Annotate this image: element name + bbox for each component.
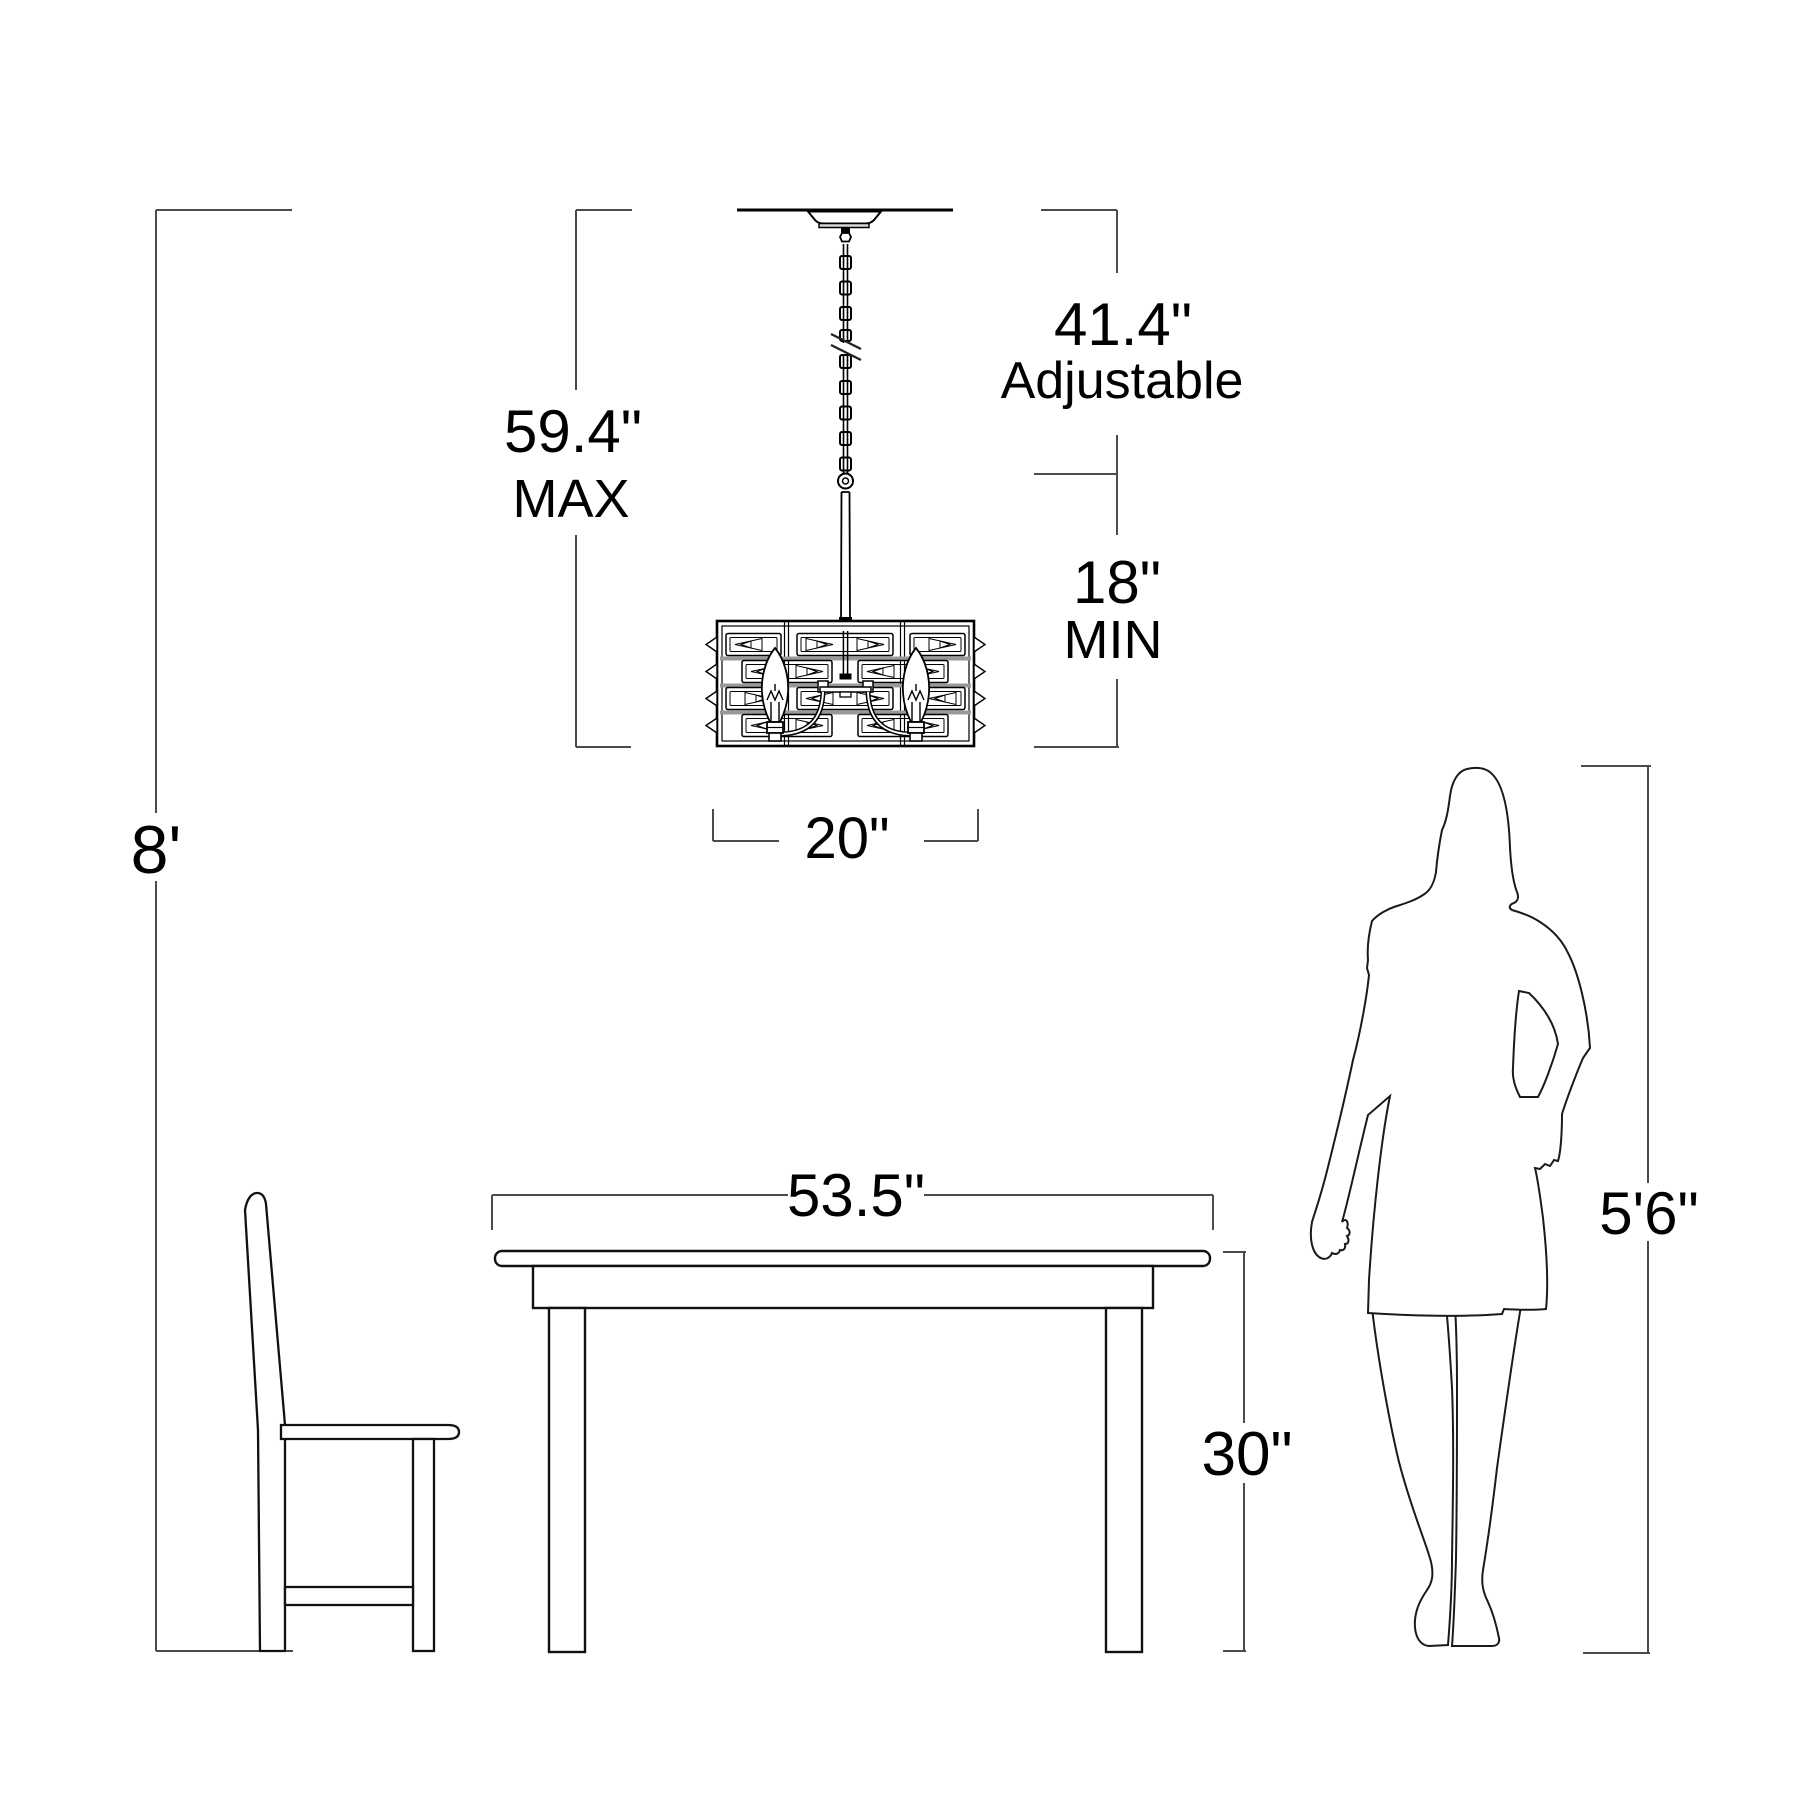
- svg-text:18": 18": [1073, 549, 1161, 616]
- svg-text:5'6": 5'6": [1599, 1180, 1699, 1247]
- svg-text:41.4": 41.4": [1054, 291, 1192, 358]
- svg-text:59.4": 59.4": [504, 398, 642, 465]
- svg-text:Adjustable: Adjustable: [1001, 352, 1244, 410]
- svg-text:MAX: MAX: [512, 469, 629, 529]
- svg-text:20": 20": [804, 806, 889, 871]
- svg-text:8': 8': [131, 812, 182, 888]
- svg-text:MIN: MIN: [1064, 610, 1163, 670]
- svg-text:30": 30": [1202, 1420, 1293, 1489]
- svg-text:53.5": 53.5": [787, 1162, 925, 1229]
